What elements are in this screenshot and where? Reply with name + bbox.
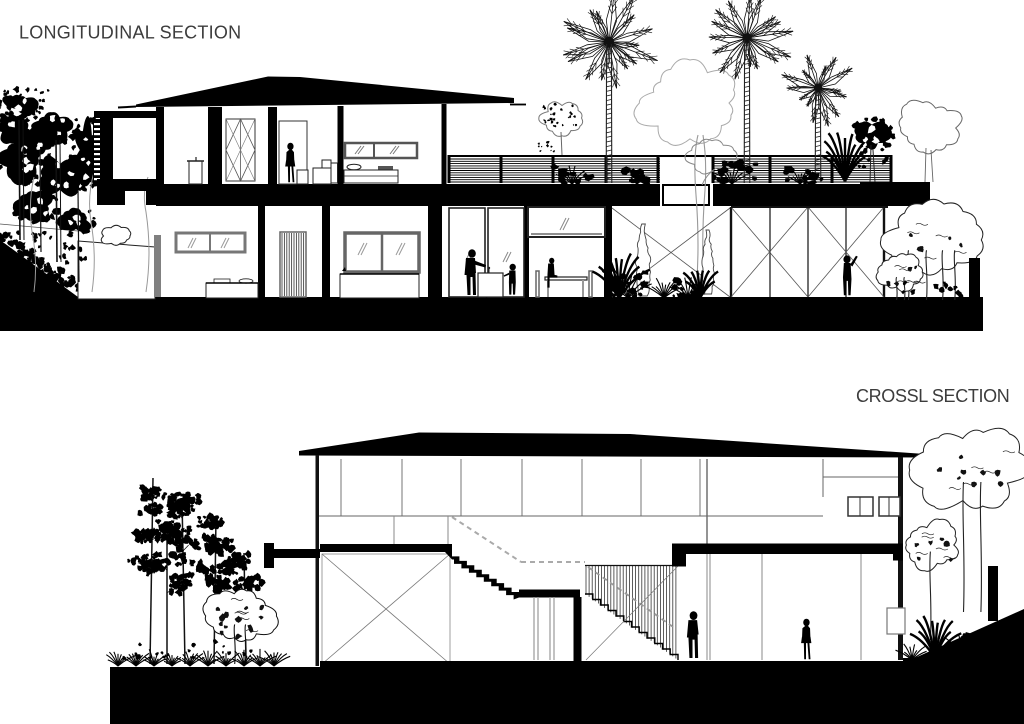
svg-text:CROSSL SECTION: CROSSL SECTION <box>856 386 1009 406</box>
svg-text:LONGITUDINAL SECTION: LONGITUDINAL SECTION <box>19 23 241 43</box>
